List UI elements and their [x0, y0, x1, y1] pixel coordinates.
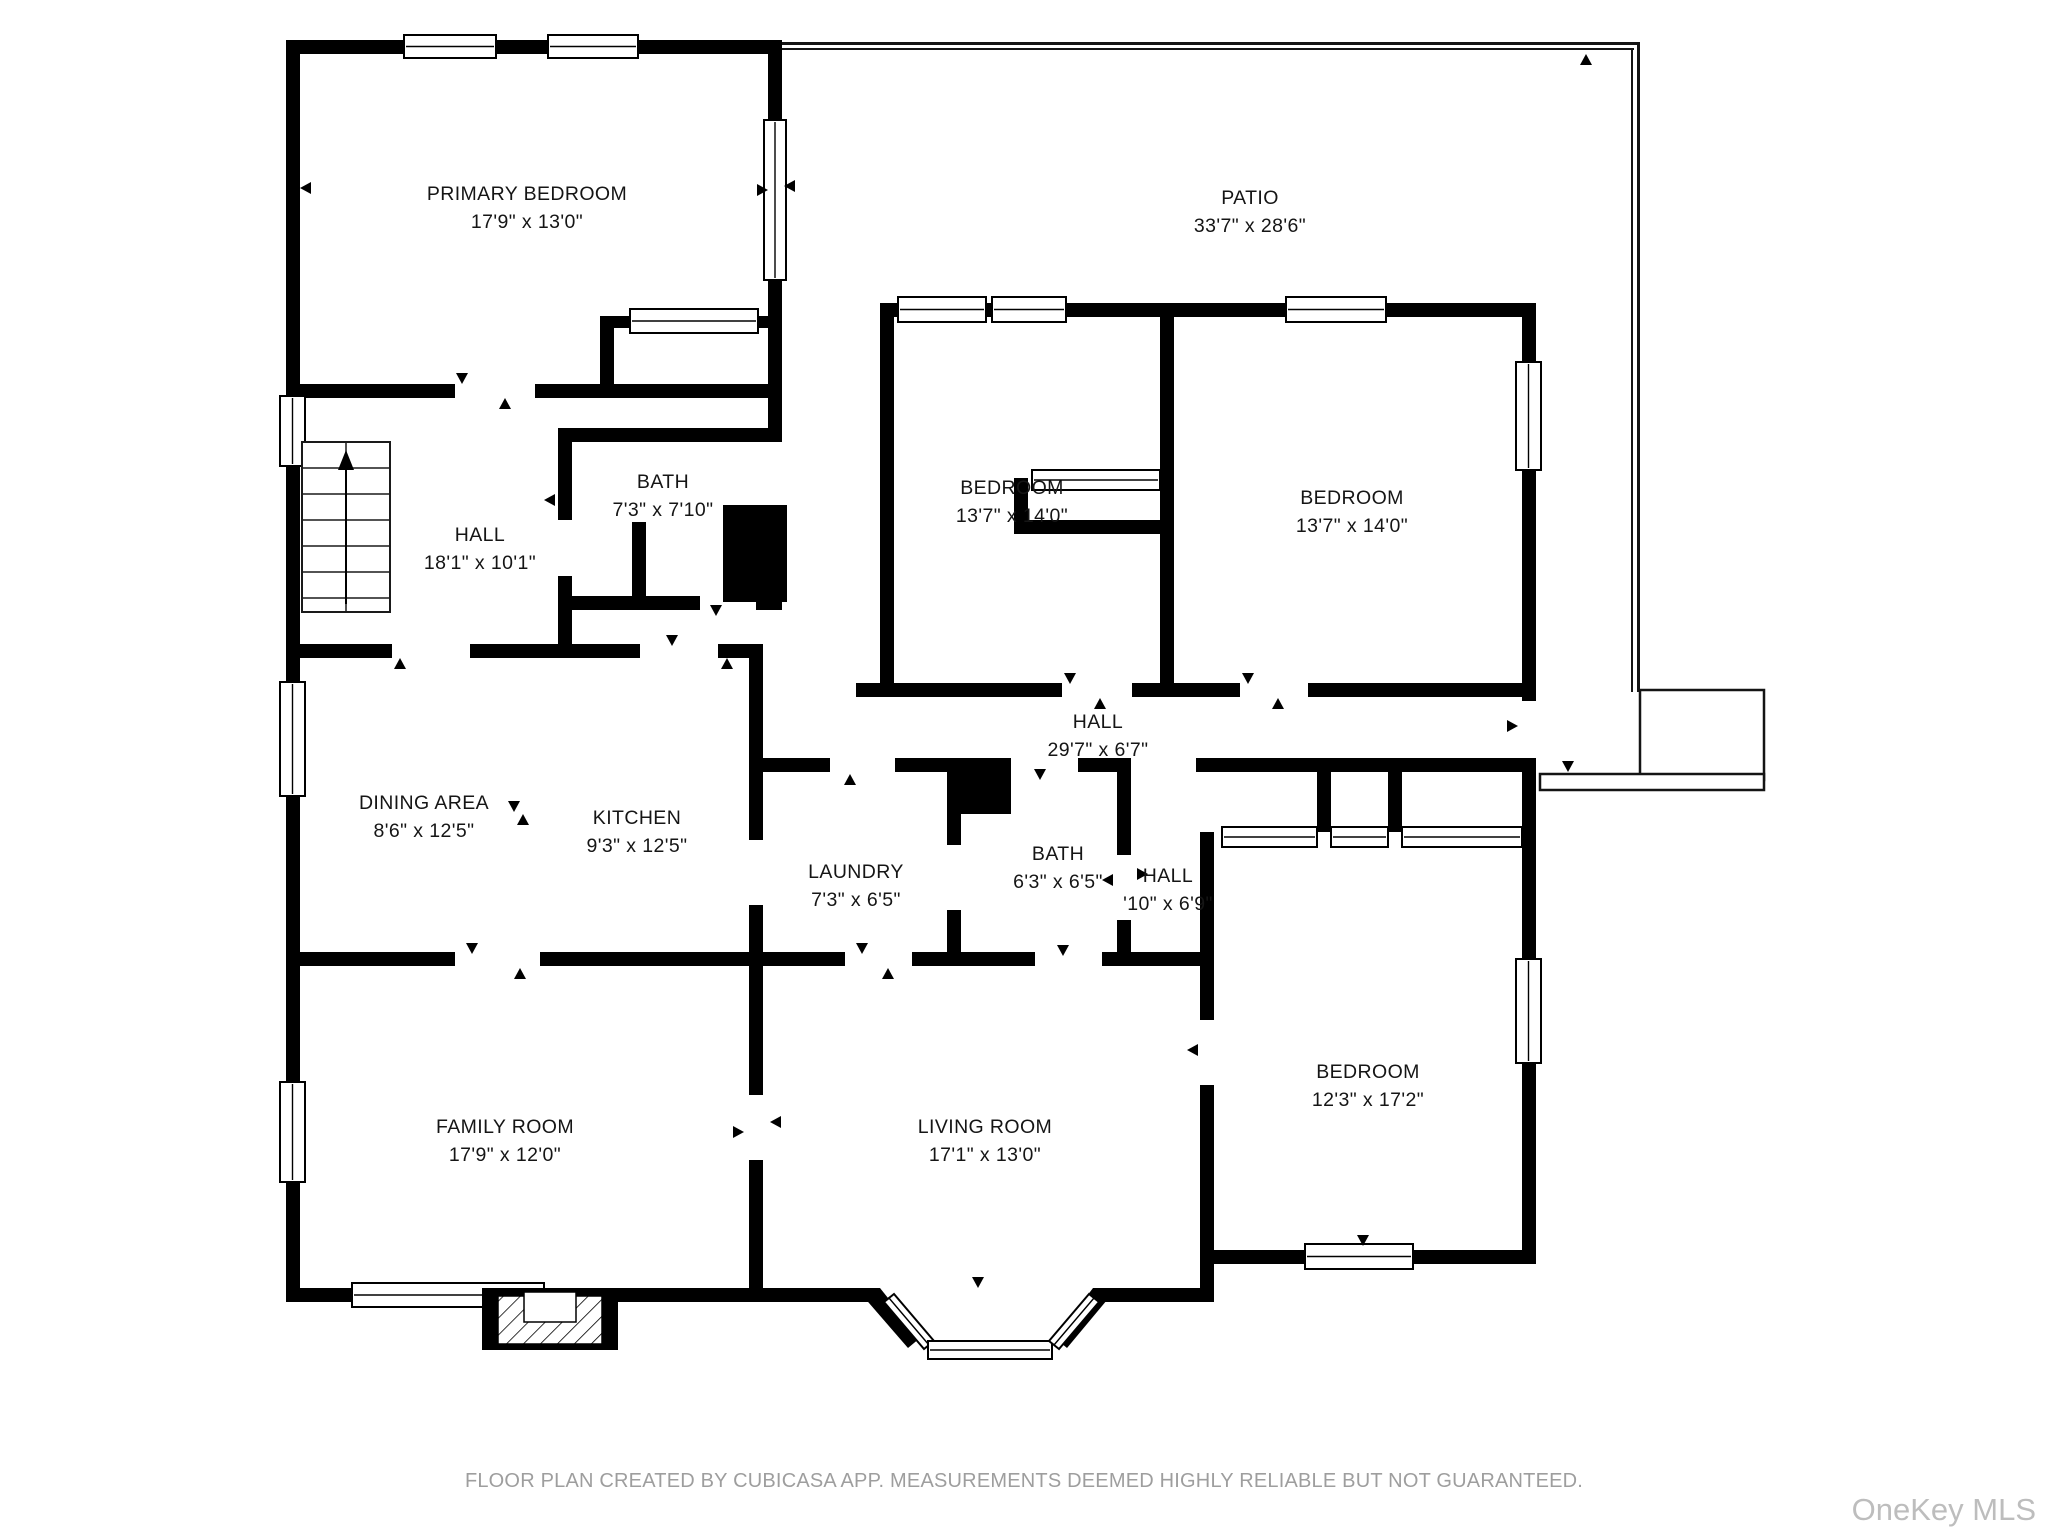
- watermark: OneKey MLS: [1852, 1492, 2036, 1528]
- room-dims: 17'9" x 13'0": [471, 211, 583, 233]
- closet-doors: [1331, 827, 1388, 847]
- room-name: LIVING ROOM: [918, 1116, 1052, 1138]
- room-name: DINING AREA: [359, 792, 489, 814]
- chimney-mass: [723, 505, 787, 602]
- room-dims: 6'3" x 6'5": [1013, 871, 1103, 893]
- room-dims: 13'7" x 14'0": [1296, 515, 1408, 537]
- window: [1516, 959, 1541, 1063]
- room-dims: 29'7" x 6'7": [1048, 739, 1149, 761]
- room-name: KITCHEN: [593, 807, 681, 829]
- window: [548, 35, 638, 58]
- room-dims: 18'1" x 10'1": [424, 552, 536, 574]
- room-name: PRIMARY BEDROOM: [427, 183, 627, 205]
- room-name: BEDROOM: [1300, 487, 1404, 509]
- patio-border: [782, 42, 1764, 790]
- window: [280, 1082, 305, 1182]
- room-dims: 7'3" x 6'5": [811, 889, 901, 911]
- window: [1305, 1244, 1413, 1269]
- window: [280, 682, 305, 796]
- room-dims: 17'9" x 12'0": [449, 1144, 561, 1166]
- room-name: HALL: [455, 524, 505, 546]
- room-name: BATH: [1032, 843, 1084, 865]
- room-dims: '10" x 6'9": [1123, 893, 1213, 915]
- exterior-landing: [1540, 774, 1764, 790]
- window: [1286, 297, 1386, 322]
- room-dims: 12'3" x 17'2": [1312, 1089, 1424, 1111]
- closet-doors: [1222, 827, 1317, 847]
- room-dims: 13'7" x 14'0": [956, 505, 1068, 527]
- room-name: FAMILY ROOM: [436, 1116, 574, 1138]
- room-name: HALL: [1143, 865, 1193, 887]
- room-name: BEDROOM: [960, 477, 1064, 499]
- room-name: PATIO: [1221, 187, 1279, 209]
- window: [992, 297, 1066, 322]
- fireplace: [482, 1288, 618, 1350]
- room-name: BATH: [637, 471, 689, 493]
- closet-doors: [1402, 827, 1522, 847]
- staircase: [302, 442, 390, 612]
- patio-step: [1640, 690, 1764, 780]
- footer-disclaimer: FLOOR PLAN CREATED BY CUBICASA APP. MEAS…: [0, 1470, 2048, 1493]
- window: [404, 35, 496, 58]
- window: [898, 297, 986, 322]
- room-name: HALL: [1073, 711, 1123, 733]
- closet-doors: [630, 309, 758, 333]
- room-dims: 33'7" x 28'6": [1194, 215, 1306, 237]
- room-dims: 9'3" x 12'5": [587, 835, 688, 857]
- patio-door: [764, 120, 786, 280]
- room-dims: 7'3" x 7'10": [613, 499, 714, 521]
- floorplan-canvas: PRIMARY BEDROOM17'9" x 13'0"PATIO33'7" x…: [0, 0, 2048, 1536]
- room-name: LAUNDRY: [808, 861, 904, 883]
- room-name: BEDROOM: [1316, 1061, 1420, 1083]
- bay-window: [856, 1288, 1117, 1359]
- room-dims: 8'6" x 12'5": [374, 820, 475, 842]
- room-dims: 17'1" x 13'0": [929, 1144, 1041, 1166]
- window: [1516, 362, 1541, 470]
